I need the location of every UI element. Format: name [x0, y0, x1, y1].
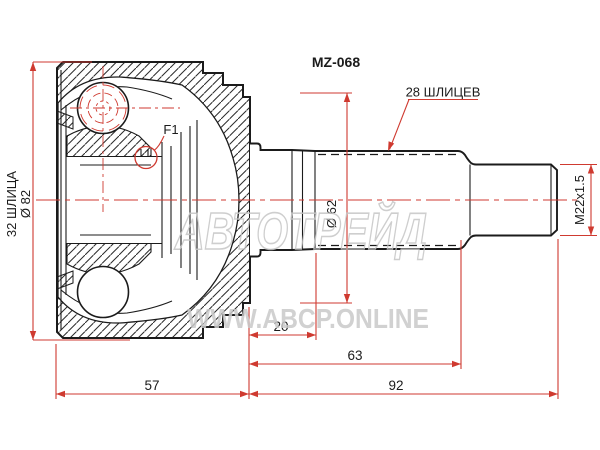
drawing-canvas: MZ-068 28 ШЛИЦЕВ F1 32 ШЛИЦА Ø 82 Ø 62 M… [0, 0, 600, 450]
dimension-92-value: 92 [388, 378, 403, 393]
label-thread-spec: M22x1.5 [572, 175, 587, 225]
watermark-site: WWW.ABCP.ONLINE [187, 303, 429, 334]
label-detail-f1: F1 [163, 122, 178, 137]
dimension-63-value: 63 [347, 348, 362, 363]
label-inner-splines: 32 ШЛИЦА [4, 171, 19, 237]
part-number: MZ-068 [312, 54, 360, 70]
ball-bearing-bottom [78, 267, 129, 318]
label-housing-diameter: Ø 82 [18, 190, 33, 218]
callout-shaft-splines [388, 100, 478, 152]
watermark-brand: АВТОТРЕЙД [173, 201, 427, 261]
dimension-57-value: 57 [144, 378, 159, 393]
cv-joint-technical-drawing: MZ-068 28 ШЛИЦЕВ F1 32 ШЛИЦА Ø 82 Ø 62 M… [0, 0, 600, 450]
label-shaft-splines: 28 ШЛИЦЕВ [406, 85, 481, 100]
